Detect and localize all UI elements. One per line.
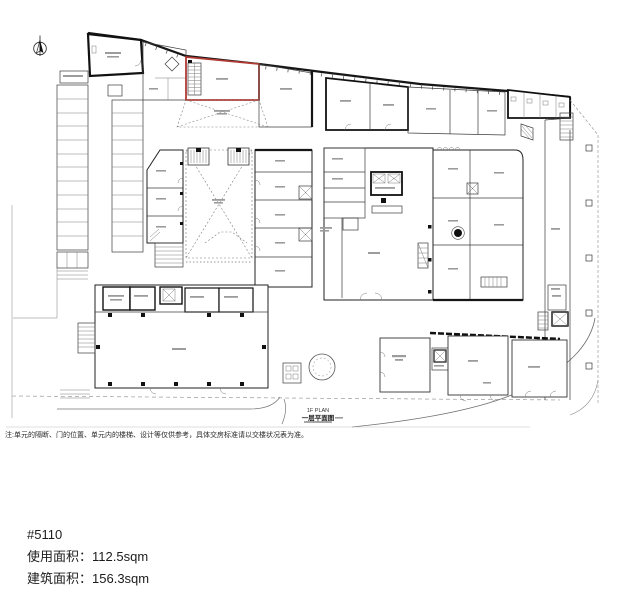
plan-footnote: 注:单元的隔断、门的位置、单元内的楼梯、设计等仅供参考，具体交房标准请以交楼状况… xyxy=(5,430,308,440)
screenshot-root: 1F PLAN 一层平面图 注:单元的隔断、门的位置、单元内的楼梯、设计等仅供参… xyxy=(0,0,642,605)
north-arrow-icon xyxy=(34,36,47,57)
floor-plan-image[interactable]: 1F PLAN 一层平面图 xyxy=(0,0,642,470)
unit-number: #5110 xyxy=(27,524,149,546)
top-building-strip xyxy=(88,33,573,140)
bottom-left-building xyxy=(60,285,268,398)
central-courtyard xyxy=(186,148,252,262)
stair-mark xyxy=(188,60,192,63)
usable-area-row: 使用面积：112.5sqm xyxy=(27,546,149,568)
courtyard-stair-east xyxy=(228,148,249,165)
west-entry-stair xyxy=(78,323,95,353)
strip-rooms-far-right xyxy=(408,87,505,135)
central-hall-building xyxy=(320,148,433,300)
plan-title-zh: 一层平面图 xyxy=(302,413,335,422)
upper-courtyard-dashes xyxy=(177,100,268,127)
utility-box xyxy=(283,363,301,383)
gross-area-value: 156.3sqm xyxy=(92,571,149,586)
gross-area-row: 建筑面积：156.3sqm xyxy=(27,568,149,590)
west-wing xyxy=(147,150,183,267)
courtyard-stair-west xyxy=(188,148,209,165)
gross-area-label: 建筑面积： xyxy=(27,571,92,586)
arcade-stair-core xyxy=(538,285,568,330)
black-unit xyxy=(88,34,143,76)
right-hall-building xyxy=(433,148,523,301)
highlighted-unit-5110[interactable] xyxy=(186,57,259,100)
plan-title: 1F PLAN 一层平面图 xyxy=(302,408,343,422)
strip-rooms-left xyxy=(143,42,186,100)
elevator-core xyxy=(371,172,402,195)
east-courtyard-building xyxy=(255,150,312,287)
round-feature xyxy=(309,354,335,380)
cluster-elevator xyxy=(432,348,448,370)
strip-rooms-right xyxy=(259,64,312,127)
parking-area xyxy=(57,71,143,279)
bottom-right-buildings xyxy=(380,333,567,401)
usable-area-value: 112.5sqm xyxy=(92,549,148,564)
plan-title-en: 1F PLAN xyxy=(307,408,329,414)
washroom-block xyxy=(508,90,570,118)
unit-info: #5110 使用面积：112.5sqm 建筑面积：156.3sqm xyxy=(27,524,149,590)
usable-area-label: 使用面积： xyxy=(27,549,92,564)
strip-block-mid xyxy=(326,78,408,130)
